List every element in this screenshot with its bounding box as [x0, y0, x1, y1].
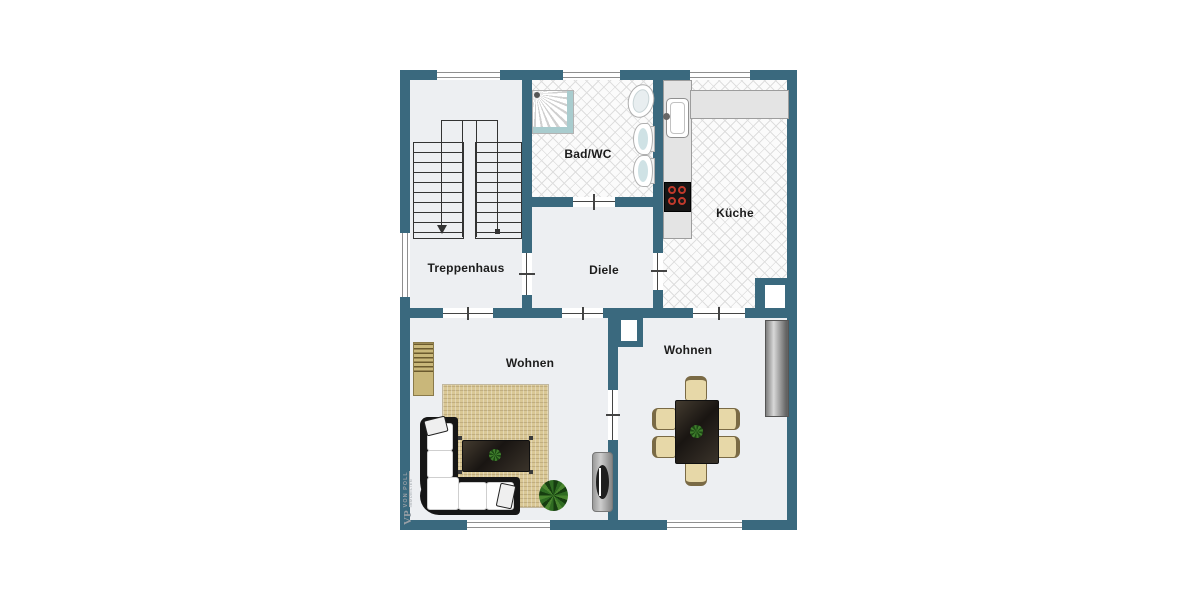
window-top-bathroom [563, 70, 620, 80]
window-bottom-dining [667, 520, 742, 530]
floor-plant-icon [539, 480, 568, 511]
radiator [592, 452, 613, 512]
door-stairwell-living-tick [467, 307, 469, 320]
burner-icon [678, 197, 686, 205]
window-top-kitchen [690, 70, 750, 80]
bidet-bowl [638, 160, 648, 182]
watermark-logo: VP [403, 510, 414, 525]
outer-wall-right [787, 70, 797, 530]
door-hall-kitchen-tick [651, 270, 667, 272]
door-stairwell-hall-tick [519, 273, 535, 275]
room-label-diele: Diele [589, 263, 619, 277]
dining-chair [716, 408, 740, 430]
toilet-bowl [638, 128, 648, 150]
stairs-walkline-left [441, 120, 442, 226]
wall-bath-hall-2 [615, 197, 653, 207]
door-bath-hall-tick [593, 194, 595, 210]
kitchen-counter-top [690, 90, 789, 119]
dining-chair [652, 408, 676, 430]
floorplan-page: Treppenhaus Bad/WC Küche Diele Wohnen Wo… [0, 0, 1200, 600]
stairs-right-flight [475, 142, 522, 239]
stairs-walkline-top [441, 120, 498, 121]
sideboard [413, 342, 434, 396]
shower-icon [532, 90, 574, 134]
door-living-dining-tick [606, 414, 620, 416]
table-plant-icon [489, 449, 501, 461]
dining-chair [652, 436, 676, 458]
shower-head-icon [534, 92, 540, 98]
floor-plan: Treppenhaus Bad/WC Küche Diele Wohnen Wo… [400, 70, 797, 530]
table-leg-mark [458, 436, 462, 440]
wall-hall-kitchen-lower [653, 290, 663, 308]
room-label-treppenhaus: Treppenhaus [428, 261, 505, 275]
hallway-floor [532, 207, 653, 308]
bidet-icon [633, 155, 653, 187]
kitchen-shaft [765, 285, 785, 308]
table-leg-mark [529, 436, 533, 440]
wardrobe [765, 320, 789, 417]
stove-icon [664, 182, 691, 212]
burner-icon [668, 186, 676, 194]
kitchen-faucet-icon [663, 113, 670, 120]
dining-chair [685, 461, 707, 486]
vonpoll-watermark: VP VON POLL IMMOBILIEN [402, 455, 414, 525]
wall-mid-2 [493, 308, 562, 318]
door-kitchen-dining-tick [718, 307, 720, 320]
wall-mid-1 [400, 308, 443, 318]
window-left-stairwell [400, 233, 410, 297]
bathroom-sink-basin [630, 87, 652, 114]
dining-niche [621, 320, 637, 341]
sofa-cushion [458, 482, 487, 510]
burner-icon [668, 197, 676, 205]
table-plant-icon [690, 425, 703, 438]
window-top-stairwell [437, 70, 500, 80]
wall-stairwell-bath [522, 80, 532, 253]
sofa-cushion [427, 450, 453, 478]
wall-living-divider-upper [608, 318, 618, 390]
watermark-text: VON POLL IMMOBILIEN [403, 471, 414, 507]
shower-tile-edge-bottom [533, 127, 573, 133]
dining-chair [685, 376, 707, 401]
sofa-cushion [427, 477, 459, 510]
stairs-divider [462, 120, 477, 237]
radiator-slit [599, 468, 601, 496]
door-hall-living-tick [582, 307, 584, 320]
burner-icon [678, 186, 686, 194]
room-label-wohnen-left: Wohnen [506, 356, 554, 370]
window-bottom-living [467, 520, 550, 530]
wall-mid-3 [603, 308, 693, 318]
stairs-start-dot [495, 229, 500, 234]
room-label-wohnen-right: Wohnen [664, 343, 712, 357]
wall-bath-hall-1 [532, 197, 573, 207]
stairs-direction-arrow [437, 225, 447, 234]
toilet-icon [633, 123, 653, 155]
radiator-detail [596, 465, 609, 499]
dining-chair [716, 436, 740, 458]
room-label-kueche: Küche [716, 206, 754, 220]
stairs-walkline-right [497, 120, 498, 231]
wall-stairwell-hall-stub [522, 295, 532, 308]
room-label-bad: Bad/WC [564, 147, 611, 161]
